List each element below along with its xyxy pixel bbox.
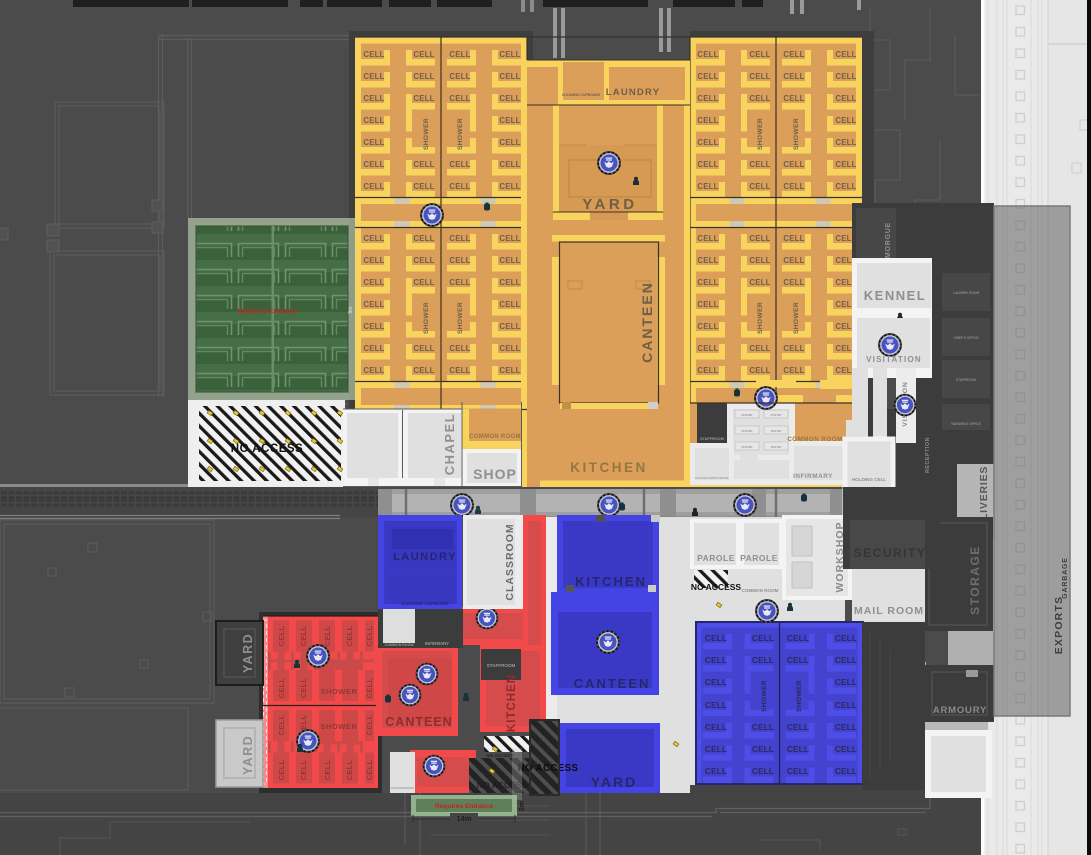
svg-text:CELL: CELL [787, 634, 809, 643]
svg-text:COMMON ROOM: COMMON ROOM [741, 588, 778, 593]
svg-text:CELL: CELL [787, 723, 809, 732]
svg-text:CELL: CELL [697, 300, 718, 309]
svg-text:CELL: CELL [499, 366, 520, 375]
svg-text:CELL: CELL [783, 50, 804, 59]
svg-text:CELL: CELL [363, 278, 384, 287]
svg-text:EXPORTS: EXPORTS [1053, 596, 1065, 655]
svg-text:KITCHEN: KITCHEN [570, 460, 648, 475]
svg-text:CELL: CELL [449, 256, 470, 265]
svg-text:CELL: CELL [783, 182, 804, 191]
svg-text:SHOWER: SHOWER [423, 118, 430, 150]
svg-text:CELL: CELL [749, 94, 770, 103]
svg-text:CELL: CELL [697, 160, 718, 169]
svg-text:SECURITY: SECURITY [854, 546, 927, 560]
svg-text:CELL: CELL [752, 745, 774, 754]
svg-text:NO ACCESS: NO ACCESS [691, 582, 742, 592]
svg-text:LAUNDRY: LAUNDRY [606, 87, 661, 98]
svg-text:Requires Entrance: Requires Entrance [238, 308, 298, 315]
svg-text:ROSTER: ROSTER [742, 445, 753, 449]
svg-text:CELL: CELL [413, 182, 434, 191]
svg-text:PAROLE: PAROLE [697, 553, 735, 563]
svg-text:CELL: CELL [705, 634, 727, 643]
svg-text:HOLDING CELL: HOLDING CELL [852, 477, 887, 482]
svg-text:INFIRMARY: INFIRMARY [425, 641, 449, 646]
svg-text:CELL: CELL [499, 160, 520, 169]
svg-text:CELL: CELL [363, 72, 384, 81]
svg-text:CELL: CELL [835, 182, 856, 191]
svg-text:RECEPTION: RECEPTION [925, 437, 931, 473]
svg-text:CELL: CELL [697, 50, 718, 59]
svg-text:CELL: CELL [749, 50, 770, 59]
svg-text:CELL: CELL [749, 72, 770, 81]
svg-text:LAUNDRY ROOM: LAUNDRY ROOM [953, 291, 980, 295]
svg-text:CELL: CELL [449, 182, 470, 191]
svg-text:CELL: CELL [413, 94, 434, 103]
svg-text:CELL: CELL [749, 160, 770, 169]
svg-text:SHOWER: SHOWER [757, 302, 764, 334]
svg-text:SHOWER: SHOWER [423, 302, 430, 334]
svg-text:CELL: CELL [787, 745, 809, 754]
svg-text:CELL: CELL [413, 72, 434, 81]
svg-text:VISITATION ROOM: VISITATION ROOM [391, 786, 414, 790]
svg-text:SHOWER: SHOWER [457, 118, 464, 150]
svg-text:CELL: CELL [749, 234, 770, 243]
svg-text:CLASSROOM: CLASSROOM [504, 523, 516, 600]
svg-text:CELL: CELL [787, 767, 809, 776]
svg-text:CELL: CELL [345, 626, 354, 647]
svg-text:CELL: CELL [363, 234, 384, 243]
svg-text:CELL: CELL [363, 366, 384, 375]
svg-text:CELL: CELL [499, 234, 520, 243]
svg-text:CANTEEN: CANTEEN [639, 281, 655, 363]
svg-text:WARDEN'S OFFICE: WARDEN'S OFFICE [951, 422, 981, 426]
svg-text:CELL: CELL [835, 634, 857, 643]
svg-text:LAUNDRY: LAUNDRY [393, 551, 457, 563]
svg-text:SHOWER: SHOWER [457, 302, 464, 334]
svg-text:COMMON ROOM: COMMON ROOM [385, 643, 414, 647]
svg-text:GARBAGE: GARBAGE [1062, 557, 1069, 598]
svg-text:PAROLE: PAROLE [740, 553, 778, 563]
svg-text:CELL: CELL [697, 256, 718, 265]
svg-text:CELL: CELL [749, 182, 770, 191]
svg-text:CELL: CELL [449, 234, 470, 243]
svg-text:MORGUE: MORGUE [885, 222, 892, 258]
svg-text:CELL: CELL [783, 366, 804, 375]
svg-text:CELL: CELL [749, 278, 770, 287]
svg-text:COMMON ROOM: COMMON ROOM [469, 434, 521, 440]
svg-text:CANTEEN: CANTEEN [385, 715, 452, 729]
svg-text:CLEANING CUPBOARD: CLEANING CUPBOARD [401, 601, 448, 606]
svg-text:ROSTER: ROSTER [771, 413, 782, 417]
svg-text:CELL: CELL [752, 656, 774, 665]
svg-text:CELL: CELL [363, 322, 384, 331]
svg-text:CELL: CELL [835, 116, 856, 125]
svg-text:KITCHEN: KITCHEN [506, 674, 518, 732]
svg-text:SHOWER: SHOWER [757, 118, 764, 150]
svg-text:SHOWER: SHOWER [321, 687, 358, 696]
svg-text:CELL: CELL [749, 366, 770, 375]
svg-text:CELL: CELL [363, 50, 384, 59]
svg-text:STORAGE: STORAGE [968, 545, 982, 615]
svg-text:CELL: CELL [835, 701, 857, 710]
svg-text:CELL: CELL [835, 138, 856, 147]
svg-text:NO ACCESS: NO ACCESS [518, 763, 579, 774]
svg-text:CELL: CELL [835, 160, 856, 169]
svg-text:14m: 14m [456, 814, 471, 823]
svg-text:CELL: CELL [835, 94, 856, 103]
svg-text:CELL: CELL [323, 760, 332, 781]
svg-text:CELL: CELL [697, 94, 718, 103]
svg-text:ROSTER: ROSTER [771, 429, 782, 433]
svg-text:CELL: CELL [345, 760, 354, 781]
svg-text:CELL: CELL [697, 138, 718, 147]
svg-text:CELL: CELL [363, 160, 384, 169]
svg-text:YARD: YARD [241, 735, 255, 775]
svg-text:KITCHEN: KITCHEN [575, 574, 647, 589]
svg-text:Requires Entrance: Requires Entrance [435, 803, 494, 810]
svg-text:ROSTER: ROSTER [771, 445, 782, 449]
svg-text:CELL: CELL [499, 300, 520, 309]
svg-text:INFIRMARY: INFIRMARY [793, 473, 833, 480]
svg-text:CELL: CELL [697, 322, 718, 331]
svg-text:CELL: CELL [783, 160, 804, 169]
svg-text:CELL: CELL [499, 322, 520, 331]
svg-text:CHIEF'S OFFICE: CHIEF'S OFFICE [953, 336, 978, 340]
svg-text:SHOWER: SHOWER [321, 722, 358, 731]
svg-text:CELL: CELL [413, 256, 434, 265]
svg-text:CELL: CELL [705, 656, 727, 665]
svg-text:CELL: CELL [835, 72, 856, 81]
svg-text:CELL: CELL [363, 344, 384, 353]
svg-text:CELL: CELL [752, 634, 774, 643]
svg-text:SHOP: SHOP [473, 466, 517, 482]
svg-text:CELL: CELL [365, 678, 374, 699]
svg-text:CELL: CELL [363, 256, 384, 265]
svg-text:STAFFROOM: STAFFROOM [700, 437, 724, 441]
svg-text:CELL: CELL [499, 94, 520, 103]
svg-text:CELL: CELL [413, 278, 434, 287]
svg-text:CELL: CELL [413, 234, 434, 243]
svg-text:CELL: CELL [299, 760, 308, 781]
svg-text:CELL: CELL [783, 72, 804, 81]
svg-text:CELL: CELL [277, 678, 286, 699]
svg-text:CELL: CELL [449, 344, 470, 353]
svg-text:CELL: CELL [449, 160, 470, 169]
svg-text:NO ACCESS: NO ACCESS [486, 753, 513, 758]
svg-text:CELL: CELL [697, 116, 718, 125]
svg-text:CELL: CELL [749, 256, 770, 265]
svg-text:CELL: CELL [697, 366, 718, 375]
svg-text:CELL: CELL [783, 344, 804, 353]
svg-text:CELL: CELL [365, 715, 374, 736]
svg-text:CHAPEL: CHAPEL [442, 413, 457, 475]
svg-text:CELL: CELL [787, 656, 809, 665]
svg-text:CELL: CELL [783, 256, 804, 265]
svg-text:CELL: CELL [697, 344, 718, 353]
svg-text:YARD: YARD [591, 774, 637, 790]
svg-text:KENNEL: KENNEL [864, 288, 926, 303]
svg-text:CELL: CELL [697, 278, 718, 287]
svg-text:CELL: CELL [499, 138, 520, 147]
svg-text:NO ACCESS: NO ACCESS [231, 443, 303, 455]
svg-text:CELL: CELL [749, 344, 770, 353]
svg-text:CELL: CELL [363, 94, 384, 103]
svg-text:CELL: CELL [835, 678, 857, 687]
svg-text:YARD: YARD [241, 633, 255, 673]
svg-text:CELL: CELL [449, 72, 470, 81]
svg-text:9m: 9m [348, 306, 354, 314]
svg-text:CELL: CELL [413, 344, 434, 353]
svg-text:CLEANING CUPBOARD: CLEANING CUPBOARD [562, 93, 601, 97]
svg-text:CELL: CELL [835, 723, 857, 732]
svg-text:CANTEEN: CANTEEN [574, 676, 651, 691]
svg-text:CELL: CELL [413, 366, 434, 375]
svg-text:CELL: CELL [413, 160, 434, 169]
svg-text:CELL: CELL [449, 50, 470, 59]
svg-text:YARD: YARD [582, 196, 637, 213]
svg-text:CELL: CELL [783, 278, 804, 287]
svg-text:CELL: CELL [449, 366, 470, 375]
svg-text:CELL: CELL [299, 626, 308, 647]
svg-text:CELL: CELL [697, 182, 718, 191]
svg-text:SHOWER: SHOWER [761, 680, 768, 712]
svg-text:CELL: CELL [277, 626, 286, 647]
svg-text:CELL: CELL [363, 138, 384, 147]
svg-text:CELL: CELL [752, 723, 774, 732]
svg-text:CELL: CELL [449, 278, 470, 287]
svg-text:CELL: CELL [277, 715, 286, 736]
svg-text:ROSTER: ROSTER [742, 413, 753, 417]
svg-text:CELL: CELL [697, 234, 718, 243]
svg-text:CELL: CELL [365, 760, 374, 781]
svg-text:CELL: CELL [783, 94, 804, 103]
svg-text:PSYCHOLOGIST'S OFFICE: PSYCHOLOGIST'S OFFICE [695, 476, 728, 480]
svg-text:STAFFROOM: STAFFROOM [956, 378, 976, 382]
svg-text:CELL: CELL [499, 256, 520, 265]
svg-text:MAIL ROOM: MAIL ROOM [854, 605, 924, 617]
svg-text:SHOWER: SHOWER [793, 302, 800, 334]
svg-text:CELL: CELL [499, 344, 520, 353]
svg-text:STAFFROOM: STAFFROOM [487, 663, 516, 668]
svg-text:CELL: CELL [835, 745, 857, 754]
svg-text:SHOWER: SHOWER [796, 680, 803, 712]
svg-text:CELL: CELL [277, 760, 286, 781]
svg-text:CELL: CELL [835, 656, 857, 665]
svg-text:ARMOURY: ARMOURY [933, 705, 987, 716]
svg-text:CELL: CELL [449, 94, 470, 103]
svg-text:2m: 2m [519, 801, 526, 811]
svg-text:CELL: CELL [299, 678, 308, 699]
svg-text:CELL: CELL [705, 767, 727, 776]
svg-text:CELL: CELL [705, 745, 727, 754]
svg-text:CELL: CELL [499, 50, 520, 59]
svg-text:ROSTER: ROSTER [742, 429, 753, 433]
svg-text:CELL: CELL [365, 626, 374, 647]
svg-text:CELL: CELL [783, 234, 804, 243]
svg-text:CELL: CELL [363, 300, 384, 309]
svg-text:CELL: CELL [499, 182, 520, 191]
svg-text:SHOWER: SHOWER [793, 118, 800, 150]
svg-text:CELL: CELL [835, 767, 857, 776]
svg-text:CELL: CELL [705, 701, 727, 710]
svg-text:CELL: CELL [413, 50, 434, 59]
svg-text:CELL: CELL [705, 678, 727, 687]
svg-text:CELL: CELL [363, 182, 384, 191]
svg-text:CELL: CELL [499, 278, 520, 287]
svg-text:CELL: CELL [835, 50, 856, 59]
svg-text:CELL: CELL [363, 116, 384, 125]
svg-text:CELL: CELL [705, 723, 727, 732]
svg-text:CELL: CELL [499, 72, 520, 81]
svg-text:CELL: CELL [499, 116, 520, 125]
svg-text:VISITATION: VISITATION [866, 355, 922, 364]
svg-text:CELL: CELL [697, 72, 718, 81]
svg-text:CELL: CELL [323, 626, 332, 647]
svg-text:CELL: CELL [752, 767, 774, 776]
